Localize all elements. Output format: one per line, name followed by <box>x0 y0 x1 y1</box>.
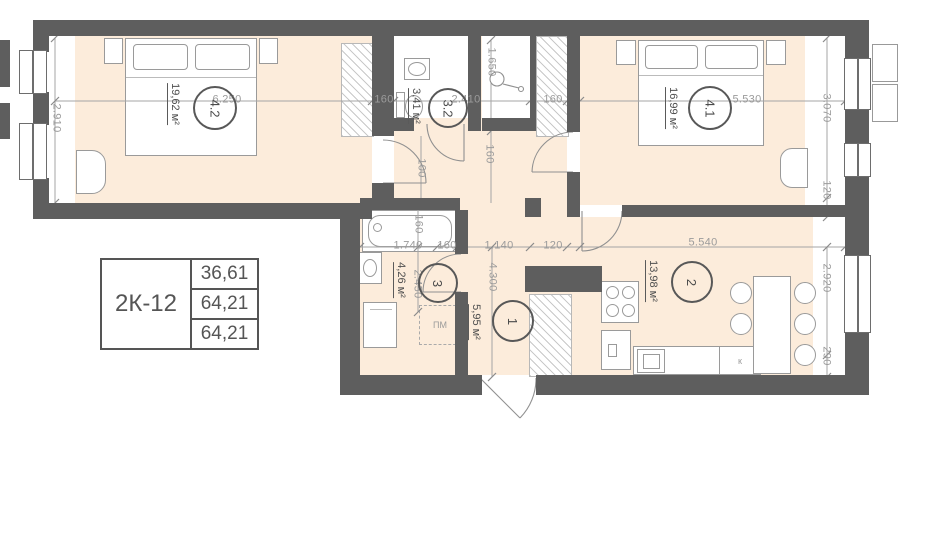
kitchen-sink-basin <box>643 354 660 369</box>
room-number-41: 4.1 <box>688 86 732 130</box>
wc-sink-basin <box>408 62 426 76</box>
wall-room41-left <box>567 172 580 217</box>
dim-kitchen-height: 2.920 <box>821 263 832 292</box>
room-number-label: 3 <box>430 279 445 286</box>
dim-kitchen-wall: 120 <box>543 241 562 252</box>
dim-room41-width: 5.530 <box>732 95 761 106</box>
room-number-3: 3 <box>418 263 458 303</box>
burner <box>606 286 619 299</box>
wall-bath-right <box>455 210 468 254</box>
oven <box>601 330 631 370</box>
room-number-label: 2 <box>684 278 699 285</box>
cabinet-line <box>370 309 392 310</box>
wall-right <box>845 177 869 255</box>
nightstand-left-42 <box>104 38 123 64</box>
room-number-2: 2 <box>671 261 713 303</box>
window-frame-line <box>857 59 859 109</box>
wall-shower-right <box>530 36 536 131</box>
room-number-label: 4.1 <box>702 99 717 117</box>
chair <box>794 344 816 366</box>
room-number-1: 1 <box>492 300 534 342</box>
area-room1: 5,95 м² <box>468 304 482 340</box>
kitchen-sink-label: к <box>738 356 742 366</box>
toilet-tank <box>396 92 405 118</box>
living-area-value: 36,61 <box>192 260 257 290</box>
washing-machine-label: ПМ <box>433 320 447 330</box>
total-area-value: 64,21 <box>192 290 257 320</box>
chair <box>794 313 816 335</box>
unit-code: 2К-12 <box>102 260 192 348</box>
dim-wall-160: 160 <box>543 95 562 106</box>
dim-bath-wall: 160 <box>437 241 456 252</box>
bathtub-drain <box>373 223 382 232</box>
bath-sink-basin <box>363 259 377 277</box>
window-right-3 <box>844 255 871 333</box>
chair <box>730 313 752 335</box>
full-area-value: 64,21 <box>192 320 257 348</box>
chair <box>794 282 816 304</box>
dining-table <box>753 276 791 374</box>
wall-wc-shower <box>468 36 481 131</box>
wall-left <box>33 92 49 125</box>
window-frame-line <box>857 256 859 332</box>
dim-hall-height: 4.300 <box>487 262 498 291</box>
dim-wall-160: 160 <box>374 95 393 106</box>
pillow <box>705 45 758 69</box>
window-frame-line <box>32 51 34 93</box>
dim-kitchen-290: 290 <box>821 346 832 365</box>
oven-handle <box>608 344 617 357</box>
bath-sink <box>358 252 382 284</box>
armchair-room42 <box>76 150 106 194</box>
wall-balcony-stub <box>0 103 10 139</box>
wall-room42-right <box>372 36 394 136</box>
bath-cabinet <box>363 302 397 348</box>
nightstand-right-42 <box>259 38 278 64</box>
wall-block <box>525 198 541 217</box>
balcony-box-1 <box>872 44 898 82</box>
nightstand-left-41 <box>616 40 636 65</box>
area-room41: 16,99 м² <box>665 87 679 129</box>
pillow <box>195 44 250 70</box>
wardrobe-hall <box>529 294 572 377</box>
dim-hall-width: 1.140 <box>484 241 513 252</box>
dim-bath-width: 1.740 <box>393 241 422 252</box>
unit-info-table: 2К-12 36,61 64,21 64,21 <box>100 258 259 350</box>
burner <box>622 304 635 317</box>
wall-bottom <box>536 375 869 395</box>
blanket-line <box>126 77 256 78</box>
dim-hall-160: 160 <box>484 144 495 163</box>
wall-kitchen-left <box>525 266 602 292</box>
wall-bath-hall <box>455 292 468 375</box>
burner <box>606 304 619 317</box>
area-room3: 4,26 м² <box>393 262 407 298</box>
room-number-32: 3.2 <box>428 88 468 128</box>
dim-room32-depth: 1.650 <box>486 47 497 76</box>
wall-top <box>42 20 869 36</box>
room-number-label: 3.2 <box>440 99 455 117</box>
floor-plan: ПМ к <box>0 0 951 539</box>
wall-right <box>845 110 869 143</box>
dim-room41-120: 120 <box>821 180 832 199</box>
unit-areas: 36,61 64,21 64,21 <box>192 260 257 348</box>
wall-shower-bottom <box>482 118 530 131</box>
room-number-label: 1 <box>505 317 520 324</box>
room-number-42: 4.2 <box>193 86 237 130</box>
dim-kitchen-width: 5.540 <box>688 238 717 249</box>
balcony-box-2 <box>872 84 898 122</box>
wall-bath-left <box>340 203 360 395</box>
dim-hall-100: 100 <box>416 158 427 177</box>
dim-room41-height: 3.070 <box>821 93 832 122</box>
nightstand-right-41 <box>766 40 786 65</box>
wall-left <box>33 20 49 52</box>
area-room32: 3,41 м² <box>408 88 422 124</box>
burner <box>622 286 635 299</box>
wall-bath-top <box>360 198 460 210</box>
pillow <box>133 44 188 70</box>
window-left-1 <box>19 50 47 94</box>
window-right-2 <box>844 143 871 177</box>
wall-right <box>845 20 869 58</box>
wall-room42-bottom <box>33 203 372 219</box>
area-room42: 19,62 м² <box>167 83 181 125</box>
wall-kitchen-top <box>622 205 845 217</box>
kitchen-sink <box>637 349 665 373</box>
window-left-2 <box>19 123 47 180</box>
wall-balcony-stub <box>0 40 10 87</box>
wardrobe-middle <box>536 36 569 137</box>
dim-room42-height: 2.910 <box>51 103 62 132</box>
dim-bath-160: 160 <box>413 214 424 233</box>
window-frame-line <box>32 124 34 179</box>
blanket-line <box>639 75 763 76</box>
wc-sink <box>404 58 430 80</box>
window-frame-line <box>857 144 859 176</box>
armchair-room41 <box>780 148 808 188</box>
wardrobe-room42 <box>341 43 374 137</box>
stove <box>601 281 639 323</box>
wall-room41-left <box>567 36 580 132</box>
room-number-label: 4.2 <box>207 99 222 117</box>
area-room2: 13,98 м² <box>645 260 659 302</box>
wall-bottom <box>340 375 482 395</box>
chair <box>730 282 752 304</box>
window-right-1 <box>844 58 871 110</box>
pillow <box>645 45 698 69</box>
